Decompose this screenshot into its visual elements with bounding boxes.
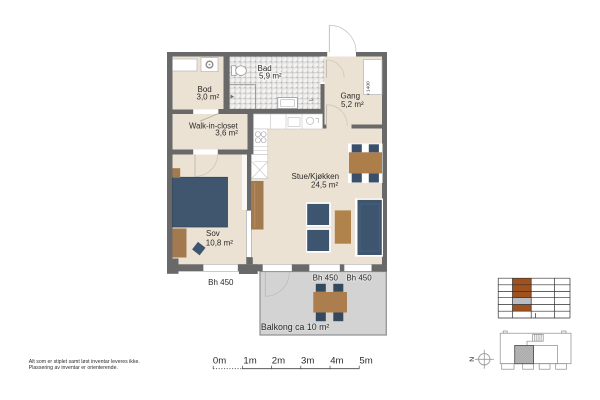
svg-text:3,0 m²: 3,0 m²	[197, 93, 220, 102]
svg-text:24,5 m²: 24,5 m²	[311, 181, 338, 190]
svg-text:1m: 1m	[243, 355, 256, 366]
svg-text:Bh 450: Bh 450	[208, 278, 234, 287]
svg-text:Sov: Sov	[206, 229, 220, 238]
svg-text:4m: 4m	[330, 355, 343, 366]
svg-text:Balkong ca 10 m²: Balkong ca 10 m²	[261, 322, 330, 332]
svg-text:3,6 m²: 3,6 m²	[215, 128, 238, 137]
svg-text:N: N	[469, 357, 476, 362]
svg-text:10,8 m²: 10,8 m²	[206, 238, 233, 247]
svg-text:1400: 1400	[365, 81, 371, 92]
svg-text:5,9 m²: 5,9 m²	[259, 72, 282, 81]
svg-text:Bh 450: Bh 450	[313, 274, 339, 283]
svg-text:Bh 450: Bh 450	[346, 274, 372, 283]
svg-text:0m: 0m	[213, 355, 226, 366]
svg-text:5,2 m²: 5,2 m²	[341, 100, 364, 109]
svg-text:3m: 3m	[301, 355, 314, 366]
svg-text:2m: 2m	[272, 355, 285, 366]
svg-text:Alt som er stiplet samt løst i: Alt som er stiplet samt løst inventar le…	[29, 359, 140, 365]
svg-text:Plassering av inventar er orie: Plassering av inventar er orienterende.	[29, 365, 118, 371]
svg-text:5m: 5m	[359, 355, 372, 366]
